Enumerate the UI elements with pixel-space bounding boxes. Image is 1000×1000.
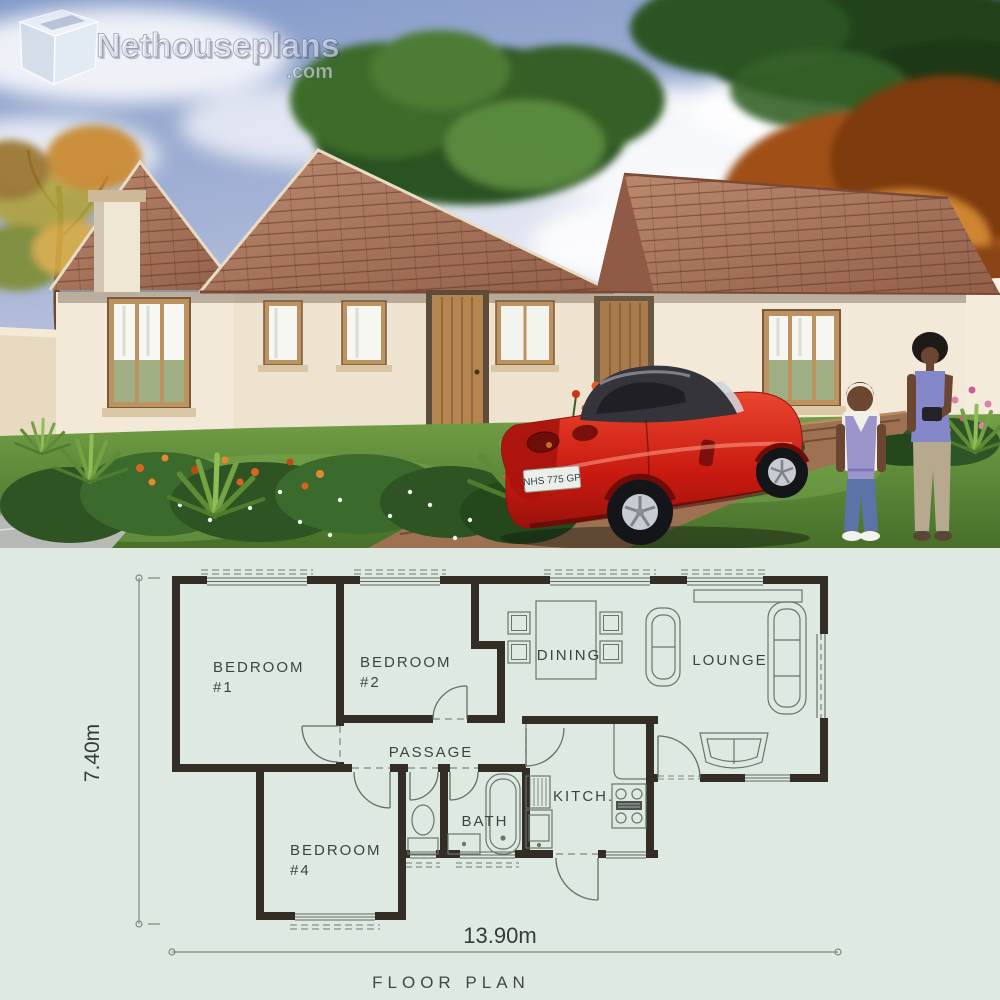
label-bedroom4-num: #4: [290, 862, 311, 879]
camera: [922, 407, 942, 421]
chimney: [88, 190, 146, 292]
label-lounge: LOUNGE: [692, 652, 767, 669]
front-door: [426, 290, 489, 440]
label-bedroom1-num: #1: [213, 679, 234, 696]
house-plan-advert: NHS 775 GP: [0, 0, 1000, 1000]
dimension-height-label: 7.40m: [81, 724, 104, 782]
floor-plan: BEDROOM #1 BEDROOM #2 DINING LOUNGE PASS…: [0, 548, 1000, 1000]
window-large-left: [102, 298, 196, 417]
label-bedroom4: BEDROOM: [290, 842, 382, 859]
advert-canvas: NHS 775 GP: [0, 0, 1000, 1000]
label-passage: PASSAGE: [389, 744, 474, 761]
window-center-1: [258, 301, 308, 372]
boy-arm: [877, 424, 886, 472]
woman-arm: [907, 374, 916, 432]
woman-shoe: [913, 531, 931, 541]
logo-brand: Nethouseplans: [96, 27, 340, 65]
boy-shoe: [860, 531, 880, 541]
license-plate: NHS 775 GP: [522, 465, 582, 492]
floor-plan-title: FLOOR PLAN: [372, 973, 530, 992]
window-center-2: [336, 301, 392, 372]
label-bath: BATH: [462, 813, 509, 830]
label-kitchen: KITCH.: [553, 788, 614, 805]
door-handle: [475, 370, 480, 375]
label-dining: DINING: [537, 647, 602, 664]
dimension-width-label: 13.90m: [463, 923, 536, 948]
label-bedroom2-num: #2: [360, 674, 381, 691]
window-sill: [102, 408, 196, 417]
kitchen-shelf-unit: [526, 776, 550, 808]
boy-arm: [836, 424, 845, 472]
label-bedroom1: BEDROOM: [213, 659, 305, 676]
window-right-of-door: [491, 301, 559, 372]
woman-shoe: [934, 531, 952, 541]
label-bedroom2: BEDROOM: [360, 654, 452, 671]
photo-scene: NHS 775 GP: [0, 0, 1000, 550]
boy-shoe: [842, 531, 862, 541]
logo-suffix: .com: [286, 61, 333, 83]
